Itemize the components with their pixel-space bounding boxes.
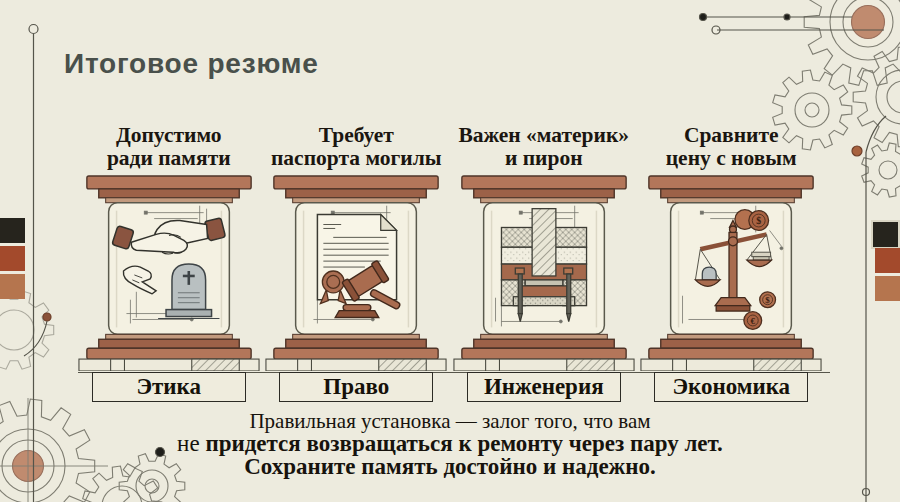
svg-text:$: $: [766, 295, 771, 305]
footer-text: Правильная установка — залог того, что в…: [0, 410, 900, 479]
footer-line-2: не придется возвращаться к ремонту через…: [0, 433, 900, 455]
category-labels-row: Этика Право Инженерия Экономика: [75, 372, 825, 402]
header-line: и пирон: [458, 147, 629, 170]
footer-line-2-bold: придется возвращаться к ремонту через па…: [205, 431, 722, 456]
pedestal-graphic: $ $ €: [637, 173, 825, 371]
category-label-ethics: Этика: [92, 372, 246, 402]
header-line: Сравните: [666, 124, 797, 147]
slide-root: Итоговое резюме Допустимо ради памяти: [0, 0, 900, 502]
column-ethics: Допустимо ради памяти: [75, 112, 263, 371]
header-line: Требует: [271, 124, 442, 147]
column-law: Требует паспорта могилы: [263, 112, 451, 371]
gravestone-icon: [703, 267, 717, 280]
footer-line-2-regular: не: [177, 431, 205, 456]
header-line: ради памяти: [107, 147, 231, 170]
svg-text:€: €: [751, 316, 756, 326]
header-line: Важен «материк»: [458, 124, 629, 147]
header-line: паспорта могилы: [271, 147, 442, 170]
column-header: Важен «материк» и пирон: [458, 112, 629, 173]
column-header: Допустимо ради памяти: [107, 112, 231, 173]
columns-row: Допустимо ради памяти: [75, 112, 825, 371]
header-line: цену с новым: [666, 147, 797, 170]
pedestal-graphic: [450, 173, 638, 371]
pedestal-graphic: [262, 173, 450, 371]
category-label-engineering: Инженерия: [467, 372, 621, 402]
column-economics: Сравните цену с новым: [638, 112, 826, 371]
footer-line-1: Правильная установка — залог того, что в…: [0, 410, 900, 432]
page-title: Итоговое резюме: [64, 48, 319, 80]
column-engineering: Важен «материк» и пирон: [450, 112, 638, 371]
category-label-economics: Экономика: [654, 372, 808, 402]
footer-line-3: Сохраните память достойно и надежно.: [0, 456, 900, 478]
category-label-law: Право: [279, 372, 433, 402]
money-stack-icon: [752, 252, 771, 260]
column-header: Требует паспорта могилы: [271, 112, 442, 173]
pedestal-graphic: [75, 173, 263, 371]
header-line: Допустимо: [107, 124, 231, 147]
column-header: Сравните цену с новым: [666, 112, 797, 173]
svg-text:$: $: [756, 215, 761, 226]
